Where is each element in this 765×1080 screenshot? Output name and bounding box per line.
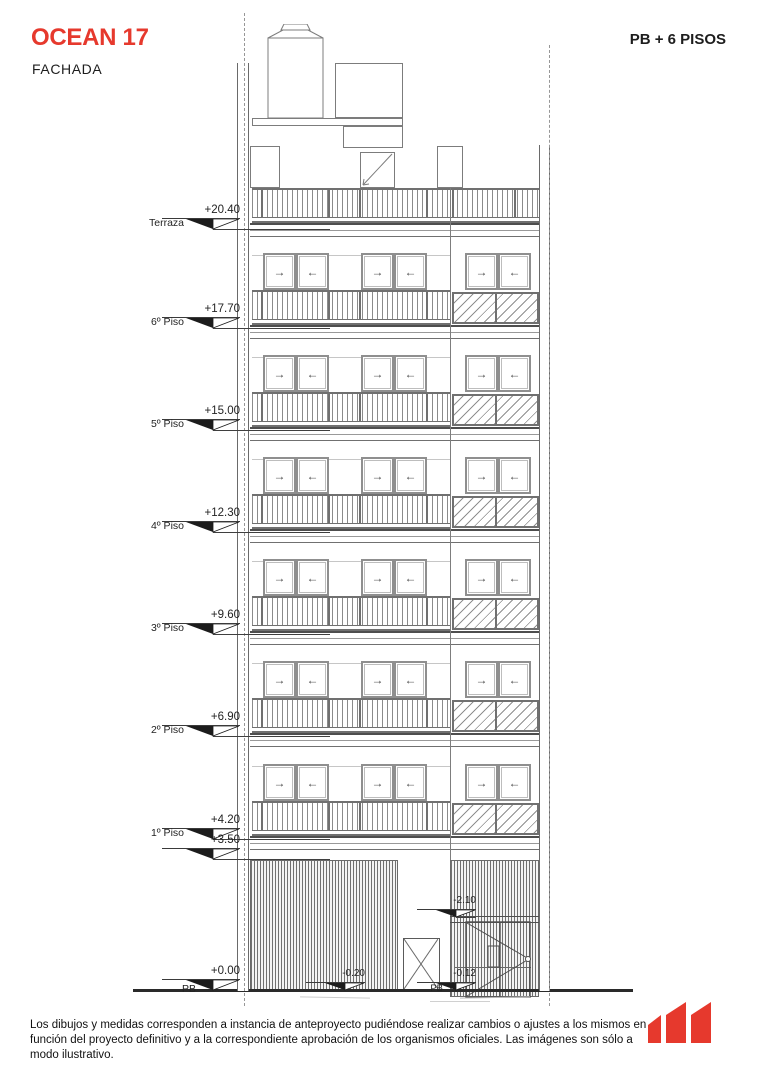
level-value: -0.20 — [306, 967, 365, 983]
balcony-railing — [252, 494, 450, 529]
door-glass: ← — [397, 460, 424, 491]
door-glass: → — [364, 460, 391, 491]
railing-post — [261, 598, 263, 625]
terrace-slab — [250, 223, 545, 237]
door-glass: ← — [397, 664, 424, 695]
railing-post — [359, 190, 361, 217]
level-label: PB — [430, 983, 443, 995]
sliding-door-right: ← — [296, 661, 329, 698]
slide-direction-arrow: ← — [307, 572, 319, 584]
railing-post — [261, 700, 263, 727]
sliding-door-right: ← — [296, 253, 329, 290]
door-glass: ← — [299, 256, 326, 287]
door-glass: ← — [299, 460, 326, 491]
water-tank-icon — [266, 24, 325, 119]
sliding-door-right: ← — [498, 764, 531, 801]
sliding-door-right: ← — [394, 559, 427, 596]
level-value: -0.12 — [417, 967, 476, 983]
sliding-door-left: → — [361, 764, 394, 801]
ground-hatch-stroke — [460, 996, 530, 998]
door-glass: → — [266, 358, 293, 389]
sliding-door-right: ← — [498, 355, 531, 392]
railing-post — [261, 803, 263, 830]
window-pair: →← — [465, 457, 531, 494]
balcony-solid-parapet — [452, 394, 539, 426]
slide-direction-arrow: → — [372, 572, 384, 584]
slide-direction-arrow: → — [274, 572, 286, 584]
door-glass: → — [364, 767, 391, 798]
level-line — [456, 917, 476, 918]
railing-post — [359, 496, 361, 523]
sliding-door-left: → — [361, 559, 394, 596]
property-line-right — [549, 45, 550, 1006]
slide-direction-arrow: ← — [509, 777, 521, 789]
slide-direction-arrow: → — [476, 470, 488, 482]
terrace-railing — [252, 188, 544, 223]
slide-direction-arrow: ← — [405, 470, 417, 482]
level-value: +0.00 — [162, 964, 240, 980]
sliding-door-right: ← — [394, 457, 427, 494]
ground-hatch-stroke — [300, 996, 370, 998]
sliding-door-right: ← — [498, 253, 531, 290]
sliding-door-left: → — [465, 661, 498, 698]
level-label: 3º Piso — [151, 622, 184, 634]
slide-direction-arrow: → — [372, 674, 384, 686]
window-pair: →← — [263, 559, 329, 596]
railing-post — [261, 394, 263, 421]
sliding-door-right: ← — [498, 661, 531, 698]
level-line — [213, 736, 330, 737]
parapet-divider — [495, 805, 497, 833]
slide-direction-arrow: ← — [405, 777, 417, 789]
slide-direction-arrow: → — [476, 674, 488, 686]
window-pair: →← — [465, 661, 531, 698]
sliding-door-left: → — [465, 764, 498, 801]
window-pair: →← — [465, 559, 531, 596]
parapet-divider — [495, 498, 497, 526]
railing-post — [261, 496, 263, 523]
balcony-solid-parapet — [452, 496, 539, 528]
door-glass: → — [468, 664, 495, 695]
window-pair: →← — [465, 764, 531, 801]
level-label: 6º Piso — [151, 316, 184, 328]
door-glass: → — [266, 664, 293, 695]
sliding-door-left: → — [361, 457, 394, 494]
slide-direction-arrow: ← — [307, 266, 319, 278]
railing-post — [328, 803, 330, 830]
door-glass: ← — [397, 256, 424, 287]
level-line — [213, 859, 330, 860]
slide-direction-arrow: ← — [307, 470, 319, 482]
railing-post — [359, 803, 361, 830]
railing-post — [328, 394, 330, 421]
sliding-door-left: → — [263, 764, 296, 801]
slide-direction-arrow: → — [476, 777, 488, 789]
sliding-door-left: → — [263, 457, 296, 494]
section-divider-line — [450, 188, 451, 860]
railing-post — [359, 700, 361, 727]
sliding-door-right: ← — [394, 661, 427, 698]
door-glass: → — [468, 358, 495, 389]
balcony-solid-parapet — [452, 803, 539, 835]
window-pair: →← — [361, 559, 427, 596]
balcony-railing — [252, 596, 450, 631]
stair-door-icon — [361, 153, 394, 187]
window-pair: →← — [465, 355, 531, 392]
railing-post — [426, 496, 428, 523]
door-glass: → — [468, 767, 495, 798]
door-glass: → — [266, 562, 293, 593]
parapet-divider — [495, 294, 497, 322]
door-glass: ← — [501, 562, 528, 593]
slide-direction-arrow: → — [274, 470, 286, 482]
door-glass: ← — [299, 562, 326, 593]
slide-direction-arrow: ← — [509, 470, 521, 482]
door-glass: → — [266, 256, 293, 287]
railing-post — [328, 598, 330, 625]
railing-post — [328, 190, 330, 217]
disclaimer-text: Los dibujos y medidas corresponden a ins… — [30, 1018, 658, 1063]
door-glass: → — [468, 460, 495, 491]
slide-direction-arrow: → — [476, 572, 488, 584]
roof-vent-right — [437, 146, 463, 188]
railing-post — [426, 803, 428, 830]
parapet-divider — [495, 396, 497, 424]
door-glass: ← — [397, 767, 424, 798]
level-label: Terraza — [149, 217, 184, 229]
balcony-railing — [252, 698, 450, 733]
sliding-door-right: ← — [394, 253, 427, 290]
door-glass: ← — [299, 767, 326, 798]
door-glass: ← — [299, 664, 326, 695]
sliding-door-right: ← — [296, 457, 329, 494]
window-pair: →← — [263, 457, 329, 494]
door-glass: ← — [501, 256, 528, 287]
slide-direction-arrow: → — [274, 674, 286, 686]
sliding-door-left: → — [263, 253, 296, 290]
level-line — [213, 328, 330, 329]
sliding-door-left: → — [361, 661, 394, 698]
door-glass: → — [468, 256, 495, 287]
railing-post — [426, 292, 428, 319]
railing-post — [452, 190, 454, 217]
slide-direction-arrow: ← — [307, 674, 319, 686]
balcony-railing — [252, 801, 450, 836]
window-pair: →← — [263, 253, 329, 290]
sliding-door-right: ← — [394, 355, 427, 392]
sliding-door-right: ← — [498, 457, 531, 494]
slide-direction-arrow: → — [274, 368, 286, 380]
sliding-door-left: → — [263, 355, 296, 392]
sliding-door-right: ← — [296, 559, 329, 596]
railing-post — [328, 700, 330, 727]
window-pair: →← — [263, 355, 329, 392]
railing-post — [514, 190, 516, 217]
window-pair: →← — [263, 764, 329, 801]
level-line — [213, 229, 330, 230]
window-pair: →← — [361, 661, 427, 698]
slide-direction-arrow: ← — [405, 674, 417, 686]
door-glass: → — [364, 256, 391, 287]
sliding-door-left: → — [361, 355, 394, 392]
sliding-door-left: → — [465, 253, 498, 290]
door-glass: ← — [501, 767, 528, 798]
slide-direction-arrow: → — [274, 266, 286, 278]
level-label: 2º Piso — [151, 724, 184, 736]
slide-direction-arrow: ← — [307, 777, 319, 789]
window-pair: →← — [361, 253, 427, 290]
railing-post — [359, 598, 361, 625]
door-glass: ← — [501, 358, 528, 389]
door-glass: → — [364, 562, 391, 593]
level-line — [213, 430, 330, 431]
railing-post — [359, 292, 361, 319]
slide-direction-arrow: → — [476, 368, 488, 380]
door-glass: ← — [501, 664, 528, 695]
door-glass: ← — [501, 460, 528, 491]
slide-direction-arrow: ← — [405, 572, 417, 584]
sliding-door-right: ← — [296, 764, 329, 801]
slide-direction-arrow: ← — [509, 572, 521, 584]
stair-door — [360, 152, 395, 188]
level-label: PB — [182, 983, 196, 995]
slide-direction-arrow: ← — [307, 368, 319, 380]
door-glass: ← — [397, 358, 424, 389]
railing-post — [426, 190, 428, 217]
window-pair: →← — [263, 661, 329, 698]
door-glass: ← — [397, 562, 424, 593]
level-line — [213, 634, 330, 635]
ground-hatch-stroke — [430, 1001, 490, 1002]
sliding-door-right: ← — [498, 559, 531, 596]
door-glass: → — [266, 767, 293, 798]
sliding-door-left: → — [263, 559, 296, 596]
railing-post — [426, 700, 428, 727]
slide-direction-arrow: → — [372, 368, 384, 380]
slide-direction-arrow: → — [372, 266, 384, 278]
door-glass: → — [266, 460, 293, 491]
window-pair: →← — [361, 764, 427, 801]
slide-direction-arrow: ← — [405, 266, 417, 278]
window-pair: →← — [465, 253, 531, 290]
parapet-divider — [495, 600, 497, 628]
m-logo-icon — [648, 1002, 713, 1043]
level-label: 4º Piso — [151, 520, 184, 532]
sliding-door-left: → — [361, 253, 394, 290]
balcony-solid-parapet — [452, 292, 539, 324]
sliding-door-left: → — [263, 661, 296, 698]
door-glass: → — [364, 358, 391, 389]
sliding-door-right: ← — [394, 764, 427, 801]
slide-direction-arrow: → — [372, 470, 384, 482]
slide-direction-arrow: → — [476, 266, 488, 278]
slide-direction-arrow: ← — [405, 368, 417, 380]
railing-post — [426, 394, 428, 421]
facade-elevation-drawing: →←→←→←→←→←→←→←→←→←→←→←→←→←→←→←→←→←→← +20… — [0, 0, 765, 1080]
sliding-door-left: → — [465, 559, 498, 596]
slide-direction-arrow: → — [372, 777, 384, 789]
parapet-divider — [495, 702, 497, 730]
machine-room — [335, 63, 403, 118]
railing-post — [328, 496, 330, 523]
level-label: 5º Piso — [151, 418, 184, 430]
level-value: +3.50 — [162, 833, 240, 849]
roof-vent-left — [250, 146, 280, 188]
balcony-railing — [252, 290, 450, 325]
balcony-solid-parapet — [452, 598, 539, 630]
sliding-door-right: ← — [296, 355, 329, 392]
level-line — [213, 532, 330, 533]
slide-direction-arrow: → — [274, 777, 286, 789]
slide-direction-arrow: ← — [509, 266, 521, 278]
door-glass: ← — [299, 358, 326, 389]
level-value: -2.10 — [417, 894, 476, 910]
railing-post — [426, 598, 428, 625]
railing-post — [261, 190, 263, 217]
stair-bulkhead — [343, 126, 403, 148]
door-glass: → — [468, 562, 495, 593]
window-pair: →← — [361, 457, 427, 494]
balcony-railing — [252, 392, 450, 427]
property-line-left — [244, 13, 245, 1006]
slide-direction-arrow: ← — [509, 674, 521, 686]
door-glass: → — [364, 664, 391, 695]
drawing-sheet: OCEAN 17 FACHADA PB + 6 PISOS →←→←→←→←→←… — [0, 0, 765, 1080]
window-pair: →← — [361, 355, 427, 392]
railing-post — [261, 292, 263, 319]
balcony-solid-parapet — [452, 700, 539, 732]
slide-direction-arrow: ← — [509, 368, 521, 380]
sliding-door-left: → — [465, 457, 498, 494]
roof-slab-band — [252, 118, 403, 126]
railing-post — [328, 292, 330, 319]
level-datum-icon — [325, 983, 365, 991]
railing-post — [359, 394, 361, 421]
sliding-door-left: → — [465, 355, 498, 392]
